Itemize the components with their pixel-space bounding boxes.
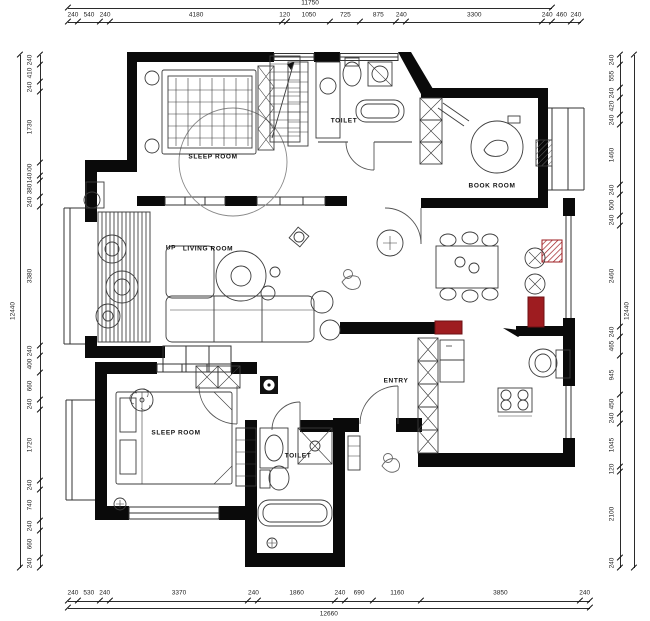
entry-items (260, 270, 400, 473)
dim-label: 240 (26, 195, 33, 208)
dim-label: 875 (372, 11, 385, 18)
dim-label: 465 (608, 340, 615, 353)
dim-label: 530 (82, 589, 95, 596)
dim-label: 690 (353, 589, 366, 596)
dim-label: 500 (608, 199, 615, 212)
dim-label: 380 (26, 182, 33, 195)
dim-label: 3300 (466, 11, 482, 18)
dim-label: 420 (608, 100, 615, 113)
dim-label: 240 (608, 325, 615, 338)
dim-label: 240 (608, 412, 615, 425)
dim-label: 1860 (288, 589, 304, 596)
dim-label: 240 (608, 86, 615, 99)
dim-line (634, 55, 635, 568)
dim-label: 3850 (492, 589, 508, 596)
toilet-bottom-fixtures (258, 428, 332, 548)
dim-label: 450 (608, 398, 615, 411)
dim-label: 2460 (608, 268, 615, 284)
label-up: UP (166, 245, 176, 252)
dim-label: 540 (83, 11, 96, 18)
red-accents (435, 240, 562, 334)
dim-label: 3370 (171, 589, 187, 596)
dim-line (620, 55, 621, 568)
dim-label: 555 (608, 70, 615, 83)
dim-label: 240 (26, 398, 33, 411)
toilet-top-fixtures (316, 58, 404, 138)
dim-label: 660 (26, 538, 33, 551)
dim-total-label: 11750 (300, 0, 320, 7)
dim-total-label: 12440 (9, 301, 16, 321)
dim-label: 945 (608, 369, 615, 382)
dim-label: 1160 (389, 589, 405, 596)
dim-label: 240 (541, 11, 554, 18)
dim-label: 240 (608, 214, 615, 227)
dim-label: 240 (578, 589, 591, 596)
label-sleep-room-bottom: SLEEP ROOM (151, 430, 200, 437)
furniture (84, 56, 570, 548)
floor-plan-canvas: SLEEP ROOM TOILET BOOK ROOM LIVING ROOM … (0, 0, 650, 621)
dim-label: 240 (26, 54, 33, 67)
bed-top (145, 70, 256, 154)
dim-label: 240 (608, 183, 615, 196)
label-living-room: LIVING ROOM (183, 246, 233, 253)
dim-line (68, 608, 590, 609)
dim-line (40, 55, 41, 568)
dim-label: 240 (26, 556, 33, 569)
dim-label: 2100 (608, 506, 615, 522)
dim-label: 240 (395, 11, 408, 18)
wardrobe-top (258, 62, 308, 150)
dim-label: 240 (99, 11, 112, 18)
dim-line (68, 8, 552, 9)
dim-label: 460 (555, 11, 568, 18)
dim-label: 1730 (26, 119, 33, 135)
dim-label: 1050 (301, 11, 317, 18)
dim-label: 740 (26, 499, 33, 512)
label-book-room: BOOK ROOM (469, 183, 516, 190)
dim-label: 660 (26, 379, 33, 392)
dim-label: 400 (26, 358, 33, 371)
kitchen (418, 338, 570, 453)
dim-label: 240 (608, 556, 615, 569)
dim-label: 240 (570, 11, 583, 18)
dining-set (436, 232, 545, 302)
stairs (270, 56, 300, 142)
bed-bottom (114, 366, 256, 510)
dim-label: 240 (608, 113, 615, 126)
dim-label: 240 (26, 80, 33, 93)
dim-label: 120 (608, 462, 615, 475)
dim-label: 240 (26, 519, 33, 532)
floor-plan-drawing (0, 0, 650, 621)
dim-label: 1720 (26, 437, 33, 453)
label-toilet-top: TOILET (331, 118, 358, 125)
label-entry: ENTRY (384, 378, 409, 385)
dim-label: 240 (67, 589, 80, 596)
dim-line (68, 601, 590, 602)
dim-label: 240 (98, 589, 111, 596)
dim-label: 240 (26, 344, 33, 357)
dim-total-label: 12660 (319, 610, 339, 617)
dim-label: 1045 (608, 436, 615, 452)
dim-label: 240 (333, 589, 346, 596)
dim-label: 3380 (26, 268, 33, 284)
dim-line (20, 55, 21, 568)
dim-label: 410 (26, 67, 33, 80)
dim-label: 240 (247, 589, 260, 596)
dim-label: 240 (26, 479, 33, 492)
bath-top-right (420, 98, 552, 173)
dim-label: 725 (339, 11, 352, 18)
dim-label: 1460 (608, 147, 615, 163)
dim-line (68, 22, 581, 23)
dim-label: 240 (67, 11, 80, 18)
label-sleep-room-top: SLEEP ROOM (188, 154, 237, 161)
label-toilet-bottom: TOILET (285, 453, 312, 460)
dim-label: 240 (608, 54, 615, 67)
dim-label: 4180 (188, 11, 204, 18)
dim-total-label: 12440 (623, 301, 630, 321)
